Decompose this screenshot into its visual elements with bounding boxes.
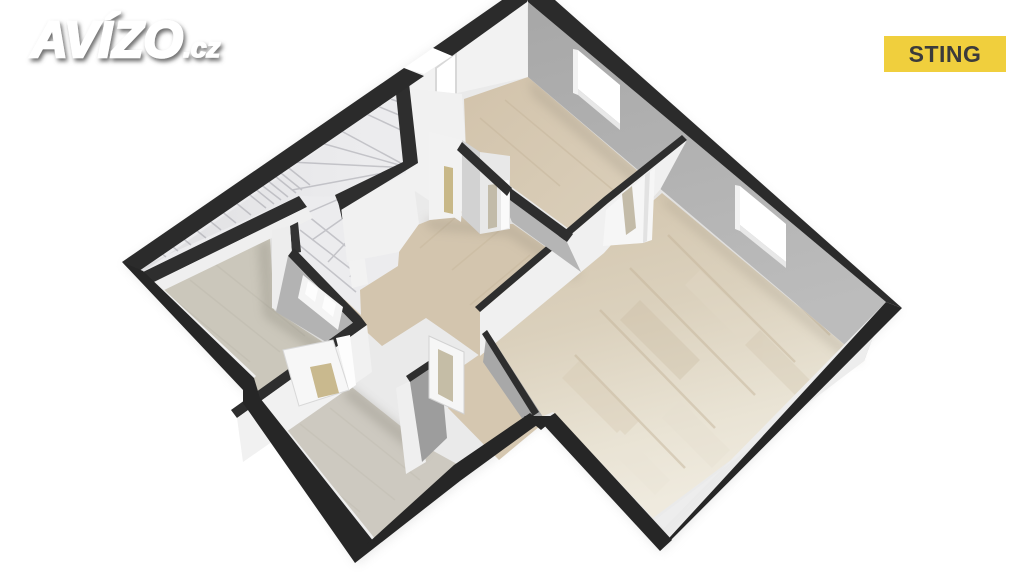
- svg-text:STING: STING: [909, 41, 982, 67]
